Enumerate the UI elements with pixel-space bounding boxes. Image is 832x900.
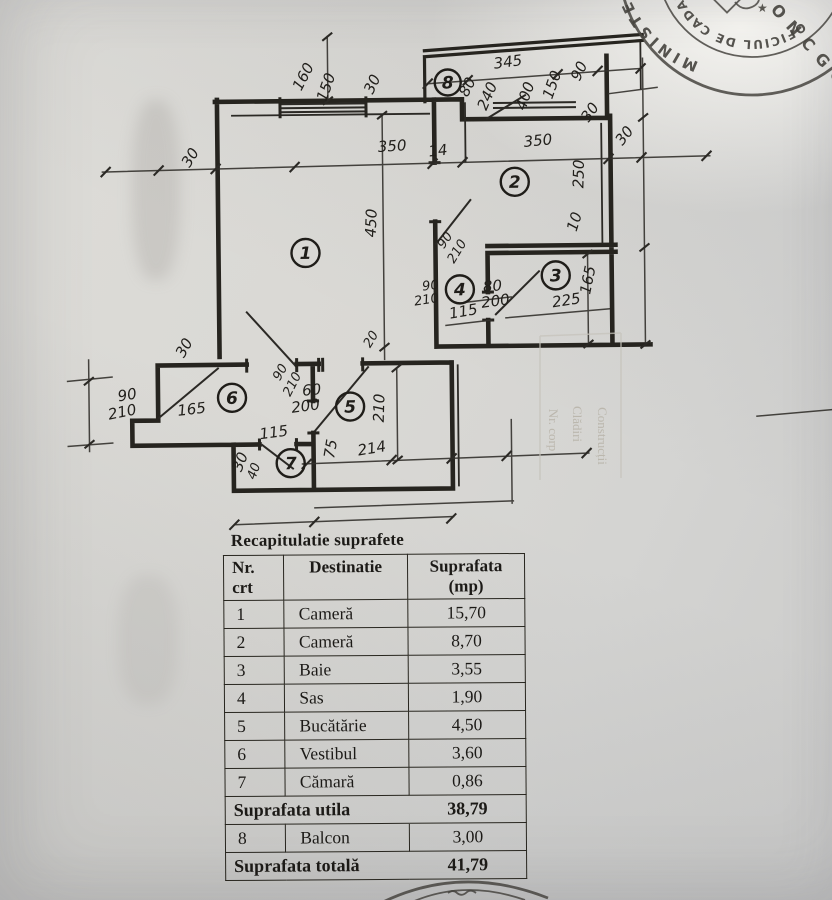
header-destinatie: Destinatie	[284, 554, 408, 600]
bleed-label: Nr. corp	[546, 409, 561, 452]
table-row: 6Vestibul3,60	[225, 738, 526, 768]
drawing: 1601503030350143503034580240400150903025…	[63, 27, 832, 531]
bottom-stamp	[383, 882, 548, 900]
row-suprafata: 4,50	[408, 710, 525, 739]
row-suprafata: 1,90	[408, 682, 525, 711]
dim-label-150: 150	[539, 68, 565, 101]
room-2-number: 2	[509, 173, 521, 193]
scanned-page: 1601503030350143503034580240400150903025…	[0, 0, 832, 900]
row-nr: 4	[224, 684, 285, 712]
recap-table: Nr. crt Destinatie Suprafata (mp) 1Camer…	[223, 553, 527, 881]
dim-label-250: 250	[569, 159, 588, 188]
cadastre-stamp: MINISTERUL OFICIUL DE CADASTRU, ONCGC ★	[0, 0, 832, 95]
dim-label-165: 165	[176, 399, 207, 420]
row-nr: 6	[225, 740, 286, 768]
bottom-stamp-arc	[383, 882, 548, 900]
bottom-stamp-marks	[448, 891, 476, 895]
dim-label-30: 30	[611, 123, 637, 149]
row-suprafata: 8,70	[408, 626, 525, 655]
room-3-number: 3	[550, 266, 562, 286]
dim-label-30: 30	[178, 145, 203, 171]
row-suprafata: 0,86	[409, 766, 526, 795]
table-row: 1Cameră15,70	[224, 598, 525, 628]
row-nr: 5	[225, 712, 286, 740]
dim-label-350: 350	[523, 130, 553, 151]
header-nr-line1: Nr.	[232, 558, 279, 578]
summary-label: Suprafata utila	[225, 795, 409, 824]
row-destinatie: Balcon	[286, 823, 410, 852]
room-8-number: 8	[442, 73, 454, 93]
room-5-number: 5	[344, 397, 356, 417]
table-row: 5Bucătărie4,50	[225, 710, 526, 740]
dim-label-160: 160	[289, 60, 318, 94]
row-suprafata: 3,55	[408, 654, 525, 683]
dim-label-14: 14	[427, 141, 448, 161]
summary-value: 38,79	[409, 794, 526, 823]
table-row: 3Baie3,55	[224, 654, 525, 684]
room-6-number: 6	[226, 389, 238, 409]
dim-label-200: 200	[290, 395, 321, 417]
bleed-label: Clădiri	[570, 406, 585, 442]
dim-label-90: 90	[567, 58, 591, 83]
row-destinatie: Sas	[285, 683, 409, 712]
dim-label-210: 210	[370, 394, 389, 423]
room-4-number: 4	[453, 280, 466, 300]
summary-value: 41,79	[409, 850, 526, 879]
dim-label-115: 115	[258, 422, 289, 444]
header-suprafata: Suprafata (mp)	[407, 553, 524, 599]
summary-row: Suprafata utila38,79	[225, 794, 526, 824]
row-destinatie: Cămară	[285, 767, 409, 796]
row-suprafata: 3,60	[409, 738, 526, 767]
bleed-label: Construcții	[595, 407, 610, 465]
dim-label-200: 200	[480, 290, 511, 312]
row-nr: 1	[224, 600, 285, 628]
stamp-star-icon: ★	[757, 1, 768, 15]
area-table: Recapitulatie suprafete Nr. crt Destinat…	[223, 529, 527, 881]
dim-label-214: 214	[356, 437, 387, 460]
room-numbers: 12345678	[215, 68, 572, 478]
dim-label-30: 30	[577, 99, 603, 125]
bleed-labels: Nr. corpClădiriConstrucții	[546, 406, 610, 465]
summary-row: Suprafata totală41,79	[226, 850, 527, 880]
dim-label-10: 10	[563, 210, 586, 234]
row-nr: 3	[224, 656, 285, 684]
header-row: Nr. crt Destinatie Suprafata (mp)	[223, 553, 524, 600]
row-destinatie: Bucătărie	[285, 711, 409, 740]
row-destinatie: Cameră	[284, 599, 408, 628]
header-nr-line2: crt	[232, 578, 279, 598]
row-suprafata: 15,70	[408, 598, 525, 627]
dim-label-450: 450	[362, 208, 381, 237]
table-row: 4Sas1,90	[224, 682, 525, 712]
dim-label-165: 165	[576, 264, 599, 296]
dim-label-30: 30	[172, 335, 197, 360]
dim-label-225: 225	[551, 289, 582, 311]
table-row: 8Balcon3,00	[225, 822, 526, 852]
dim-label-20: 20	[361, 328, 382, 350]
row-nr: 7	[225, 768, 286, 796]
room-7-number: 7	[285, 454, 297, 474]
bleed-through: Nr. corpClădiriConstrucții	[540, 333, 621, 480]
stamp-arc-text: OFICIUL DE CADASTRU,	[0, 0, 809, 52]
header-suprafata-line1: Suprafata	[412, 556, 520, 577]
row-nr: 8	[225, 824, 286, 852]
row-destinatie: Baie	[285, 655, 409, 684]
row-suprafata: 3,00	[409, 822, 526, 851]
dim-label-345: 345	[493, 51, 524, 73]
table-title: Recapitulatie suprafete	[231, 529, 525, 551]
dim-label-30: 30	[360, 72, 384, 97]
dim-label-350: 350	[377, 136, 407, 156]
header-nr: Nr. crt	[223, 555, 284, 600]
table-row: 2Cameră8,70	[224, 626, 525, 656]
summary-label: Suprafata totală	[226, 851, 410, 880]
dimension-lines	[63, 30, 832, 526]
table-row: 7Cămară0,86	[225, 766, 526, 796]
row-destinatie: Vestibul	[285, 739, 409, 768]
room-1-number: 1	[299, 244, 311, 264]
row-destinatie: Cameră	[284, 627, 408, 656]
dim-label-75: 75	[320, 438, 341, 460]
header-suprafata-line2: (mp)	[412, 576, 520, 597]
row-nr: 2	[224, 628, 285, 656]
